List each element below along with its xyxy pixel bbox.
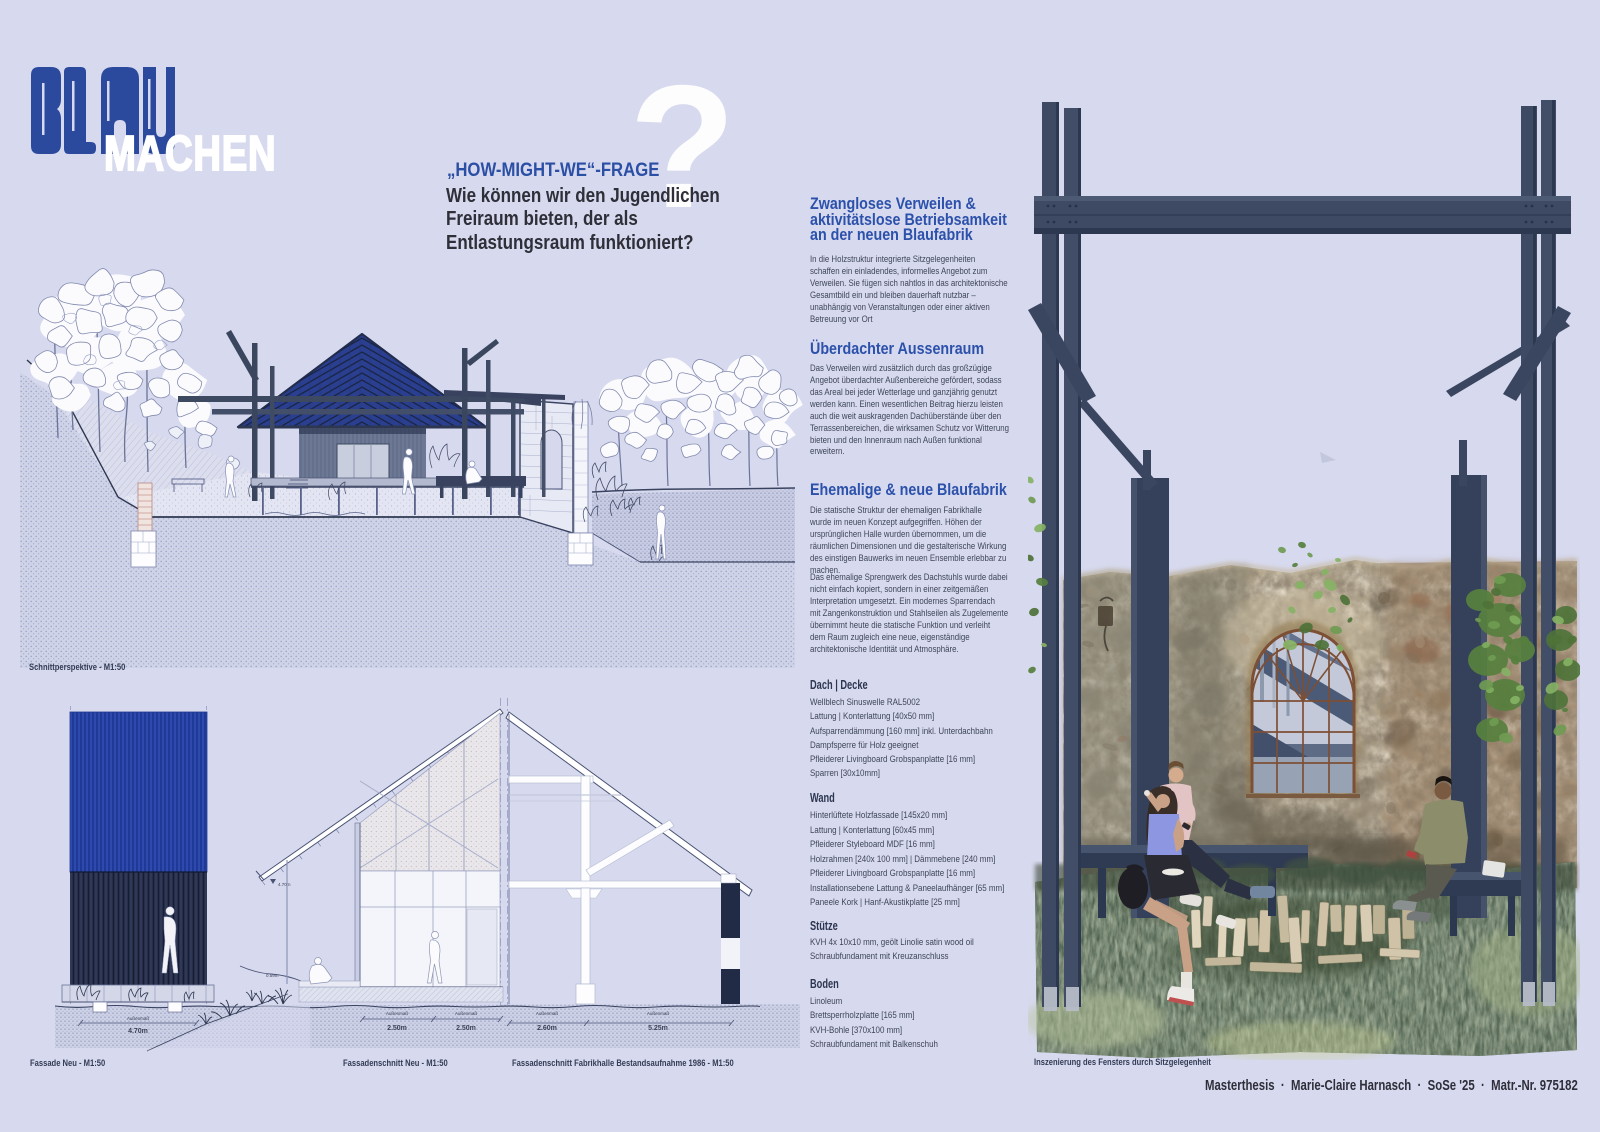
svg-text:2.60m: 2.60m bbox=[537, 1025, 557, 1032]
svg-text:4.70m: 4.70m bbox=[278, 882, 291, 887]
svg-text:2.50m: 2.50m bbox=[387, 1025, 407, 1032]
svg-text:4.70m: 4.70m bbox=[128, 1028, 148, 1035]
svg-text:Außenmaß: Außenmaß bbox=[647, 1011, 670, 1016]
svg-text:0.59m: 0.59m bbox=[266, 973, 279, 978]
svg-text:Außenmaß: Außenmaß bbox=[455, 1011, 478, 1016]
svg-text:Außenmaß: Außenmaß bbox=[127, 1016, 150, 1021]
svg-text:Außenmaß: Außenmaß bbox=[386, 1011, 409, 1016]
svg-text:Außenmaß: Außenmaß bbox=[536, 1011, 559, 1016]
svg-text:2.50m: 2.50m bbox=[456, 1025, 476, 1032]
svg-text:5.25m: 5.25m bbox=[648, 1025, 668, 1032]
